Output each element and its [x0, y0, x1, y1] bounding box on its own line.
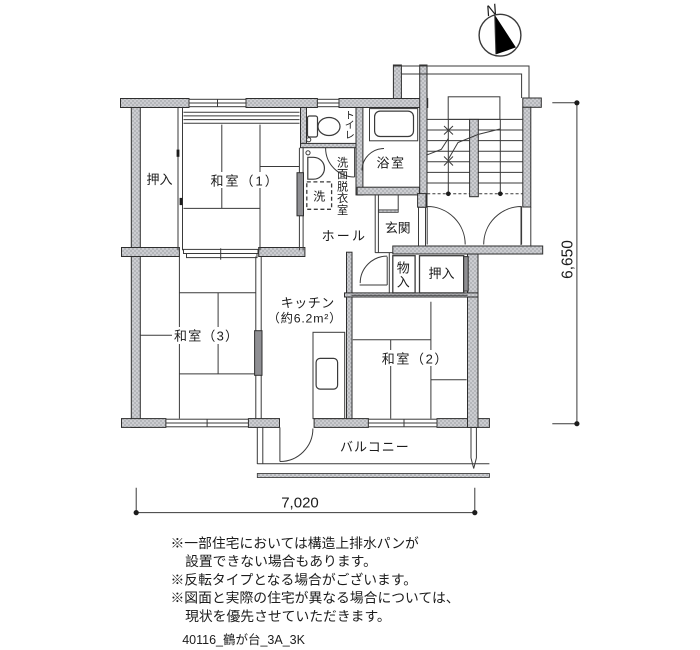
svg-text:和室（1）: 和室（1） — [211, 174, 280, 189]
svg-text:物: 物 — [397, 261, 410, 276]
svg-text:7,020: 7,020 — [281, 495, 319, 512]
svg-text:（約6.2m²）: （約6.2m²） — [268, 311, 343, 326]
svg-text:和室（3）: 和室（3） — [174, 329, 239, 344]
svg-text:現状を優先させていただきます。: 現状を優先させていただきます。 — [185, 609, 391, 624]
svg-text:※反転タイプとなる場合がございます。: ※反転タイプとなる場合がございます。 — [171, 572, 418, 588]
svg-text:玄関: 玄関 — [385, 221, 411, 236]
svg-text:脱: 脱 — [337, 179, 348, 193]
svg-text:6,650: 6,650 — [560, 240, 577, 279]
svg-text:設置できない場合もあります。: 設置できない場合もあります。 — [185, 554, 377, 569]
svg-text:バルコニー: バルコニー — [340, 440, 410, 455]
svg-text:40116_鶴が台_3A_3K: 40116_鶴が台_3A_3K — [182, 632, 305, 647]
svg-text:入: 入 — [397, 275, 410, 290]
svg-text:押入: 押入 — [147, 172, 173, 187]
svg-text:ホール: ホール — [322, 228, 368, 243]
svg-text:洗: 洗 — [313, 190, 325, 204]
svg-text:押入: 押入 — [429, 266, 455, 281]
svg-text:浴室: 浴室 — [377, 155, 406, 170]
svg-text:キッチン: キッチン — [281, 296, 335, 311]
svg-text:N: N — [484, 1, 499, 20]
svg-text:面: 面 — [337, 169, 348, 181]
svg-text:室: 室 — [337, 203, 348, 217]
svg-text:レ: レ — [345, 130, 355, 141]
svg-text:※一部住宅においては構造上排水パンが: ※一部住宅においては構造上排水パンが — [171, 536, 420, 551]
svg-text:和室（2）: 和室（2） — [382, 352, 449, 367]
svg-text:洗: 洗 — [337, 156, 348, 169]
svg-text:※図面と実際の住宅が異なる場合については、: ※図面と実際の住宅が異なる場合については、 — [171, 591, 460, 606]
svg-text:衣: 衣 — [337, 191, 348, 205]
